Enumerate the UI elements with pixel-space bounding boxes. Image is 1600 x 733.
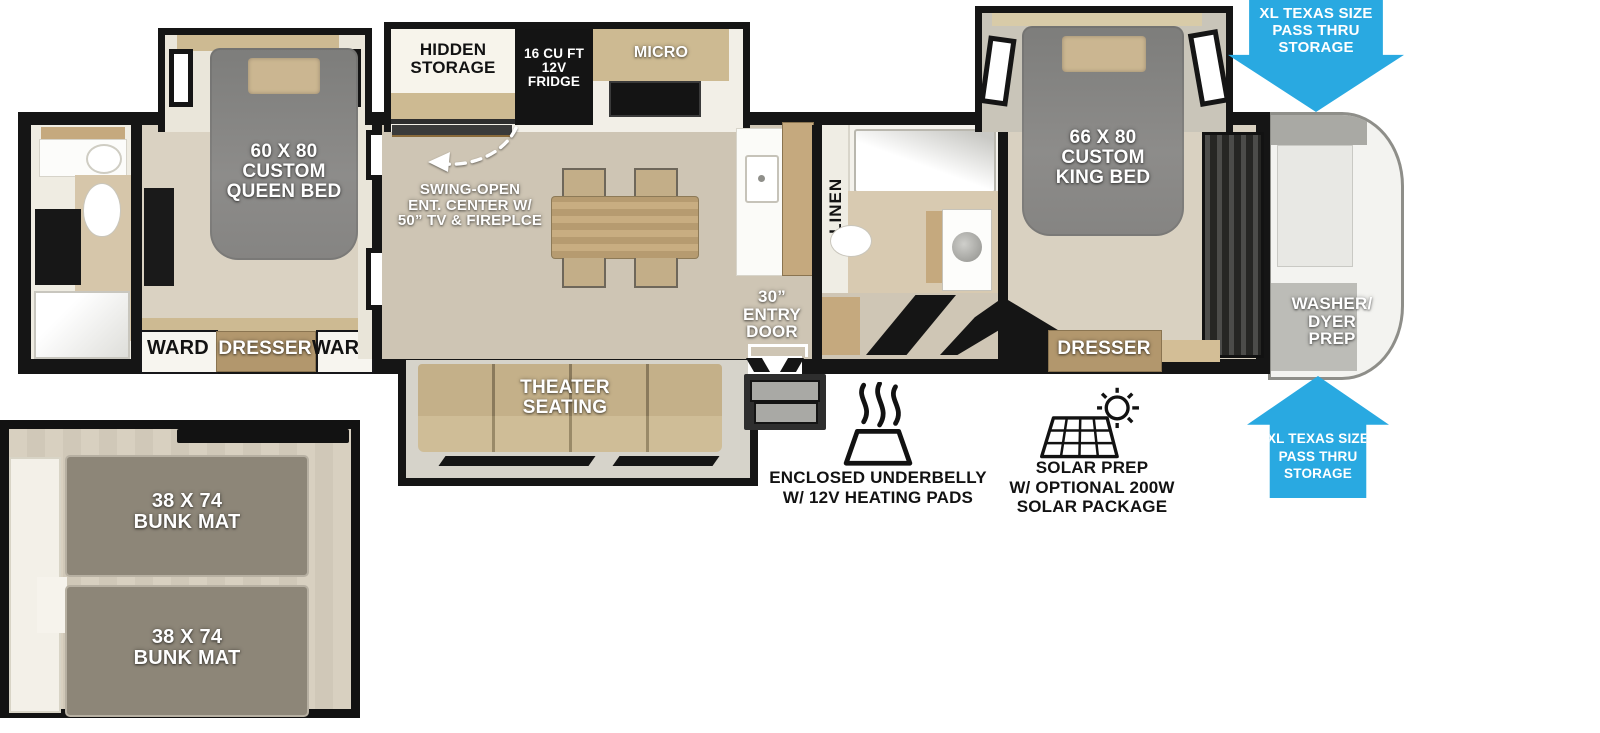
toilet-2 (830, 225, 872, 257)
microwave (609, 81, 701, 117)
pass-thru-arrow-top: XL TEXAS SIZE PASS THRU STORAGE (1228, 0, 1404, 112)
stairs-2 (940, 301, 998, 355)
heating-pads-icon (838, 382, 918, 468)
dining-table (552, 197, 698, 258)
bunk-wardrobe (9, 457, 61, 713)
queen-pillow (248, 58, 320, 94)
bunk-wardrobe-notch (37, 577, 67, 633)
floorplan: WASHER/ DYER PREP 60 X 80 CUSTOM QUEEN B… (0, 0, 1600, 733)
tub-shower (854, 129, 996, 193)
cap-trim-top (1271, 115, 1367, 145)
washer (942, 209, 992, 291)
toilet (83, 183, 121, 237)
top-wall-3 (730, 112, 980, 125)
king-window-right (1188, 29, 1230, 107)
king-closet (1202, 132, 1264, 358)
king-pillow (1062, 36, 1146, 72)
wall-living-bath (812, 125, 822, 374)
kitchen-counter (736, 128, 784, 276)
washer-door (952, 232, 982, 262)
left-wall (18, 112, 31, 374)
dining-chair-1 (562, 168, 606, 200)
cap-panel (1277, 145, 1353, 267)
sofa-seat (418, 416, 722, 452)
washer-cabinet (926, 211, 942, 283)
king-window-left (979, 35, 1016, 106)
mid-bathroom: LINEN (822, 125, 998, 299)
bunk-room: 38 X 74 BUNK MAT 38 X 74 BUNK MAT (0, 420, 360, 718)
bunk-tv (177, 429, 349, 443)
hall-step-wood (822, 297, 860, 355)
micro-label: MICRO (593, 45, 729, 62)
underbelly-label: ENCLOSED UNDERBELLY W/ 12V HEATING PADS (766, 468, 990, 509)
solar-label: SOLAR PREP W/ OPTIONAL 200W SOLAR PACKAG… (992, 458, 1192, 517)
dining-chair-2 (634, 168, 678, 200)
front-cap: WASHER/ DYER PREP (1268, 112, 1404, 380)
bath-shelf (41, 127, 125, 139)
king-shelf (1162, 340, 1220, 362)
shower (34, 291, 130, 359)
queen-bed-label: 60 X 80 CUSTOM QUEEN BED (200, 142, 368, 201)
entry-door-gap (748, 356, 802, 374)
sofa-floor-mark-1 (438, 456, 595, 466)
sink-basin (86, 144, 122, 174)
pass-thru-top-label: XL TEXAS SIZE PASS THRU STORAGE (1228, 6, 1404, 56)
fridge-label: 16 CU FT 12V FRIDGE (515, 47, 593, 89)
wall-bath-king (998, 125, 1008, 359)
dining-chair-3 (562, 258, 606, 288)
wall-bath-queen (131, 125, 142, 359)
bath-sink-counter (39, 139, 127, 177)
pass-thru-bottom-label: XL TEXAS SIZE PASS THRU STORAGE (1255, 430, 1381, 483)
entry-door-bracket (748, 344, 808, 357)
swing-open-arrow (420, 120, 524, 184)
bath-door (35, 209, 81, 285)
front-bathroom (31, 125, 131, 359)
hallway-floor (822, 293, 998, 359)
dining-chair-4 (634, 258, 678, 288)
pass-thru-arrow-bottom: XL TEXAS SIZE PASS THRU STORAGE (1247, 376, 1389, 498)
king-ceiling-strip (992, 13, 1202, 26)
washer-dryer-prep-label: WASHER/ DYER PREP (1273, 295, 1391, 348)
bunk-mat-bottom-label: 38 X 74 BUNK MAT (65, 627, 309, 669)
bunk-mat-top-label: 38 X 74 BUNK MAT (65, 491, 309, 533)
queen-window-left (169, 49, 193, 107)
entry-step-2 (754, 402, 818, 424)
ent-center-label: SWING-OPEN ENT. CENTER W/ 50” TV & FIREP… (382, 182, 558, 229)
entry-door-label: 30” ENTRY DOOR (722, 288, 822, 341)
stairs-1 (866, 295, 956, 355)
kitchen-top-row: HIDDEN STORAGE 16 CU FT 12V FRIDGE MICRO (384, 22, 750, 132)
entry-steps (744, 374, 826, 430)
top-wall-1 (18, 112, 164, 125)
faucet-dot (758, 175, 765, 182)
king-bed-label: 66 X 80 CUSTOM KING BED (1018, 128, 1188, 187)
queen-dresser-label: DRESSER (216, 339, 314, 359)
sofa-floor-mark-2 (612, 456, 719, 466)
queen-tv (144, 188, 174, 286)
solar-prep-icon (1040, 386, 1144, 460)
hidden-storage-label: HIDDEN STORAGE (391, 41, 515, 76)
door-mark-right (780, 358, 804, 372)
queen-ward-left-label: WARD (140, 338, 216, 359)
entry-step-1 (750, 380, 820, 402)
theater-seating-label: THEATER SEATING (480, 378, 650, 418)
door-mark-left (746, 358, 770, 372)
kitchen-sink (745, 155, 779, 203)
entry-wardrobe (782, 122, 814, 276)
king-dresser-label: DRESSER (1048, 339, 1160, 359)
